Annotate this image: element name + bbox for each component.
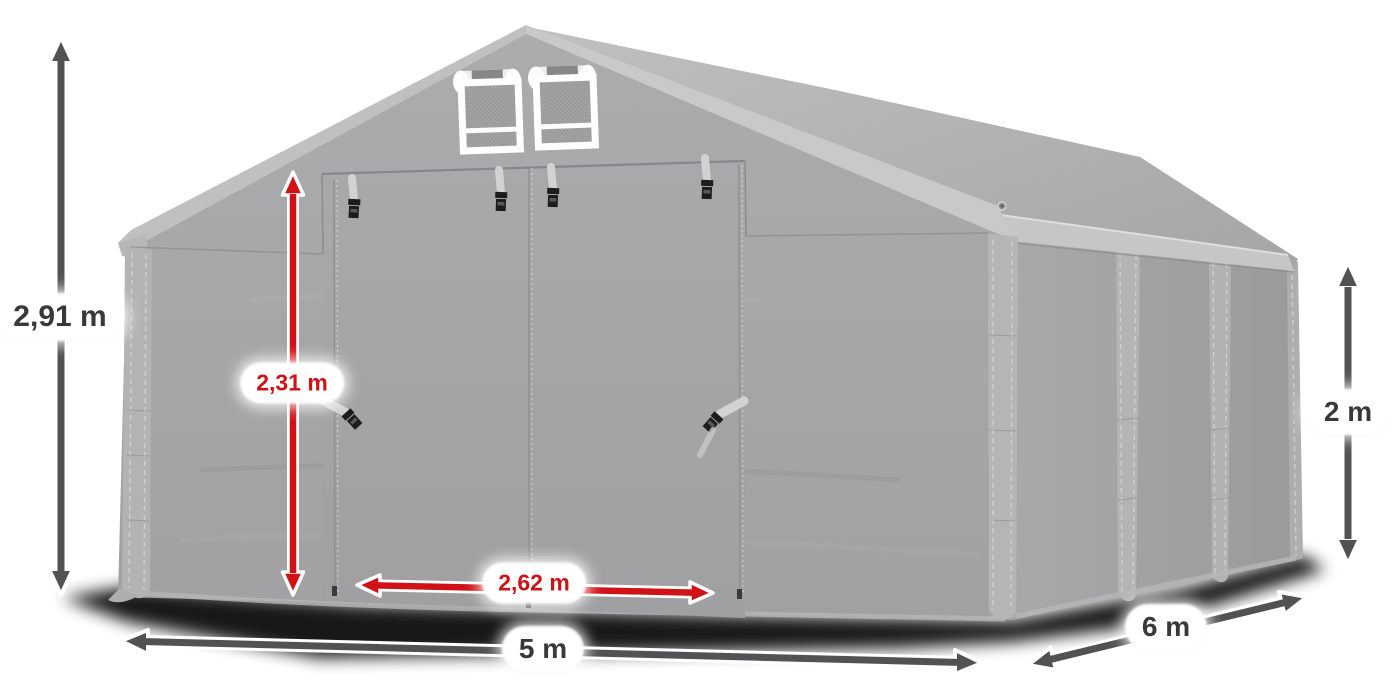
tent-illustration-canvas — [0, 0, 1400, 700]
dimension-label-side-depth: 6 m — [1128, 607, 1204, 647]
dimension-label-front-width: 5 m — [505, 629, 581, 669]
vent-window-left — [453, 68, 524, 151]
dimension-label-door-width: 2,62 m — [485, 566, 583, 601]
dimension-label-total-height: 2,91 m — [0, 296, 122, 338]
tent-side-wall — [1010, 237, 1303, 620]
dimension-label-door-height: 2,31 m — [243, 366, 341, 401]
dimension-label-wall-height: 2 m — [1310, 392, 1386, 432]
tent-front-doors — [322, 161, 746, 618]
side-wall-pillar — [1116, 249, 1140, 601]
front-left-corner-pillar — [108, 247, 152, 602]
vent-window-right — [528, 64, 599, 147]
door-panels — [322, 161, 745, 618]
window-frame — [536, 77, 595, 147]
roof-grommet — [998, 202, 1006, 210]
side-wall-pillar — [1209, 258, 1231, 582]
tent-dimensions-illustration: 2,91 m 2,31 m 2,62 m 5 m 6 m 2 m — [0, 0, 1400, 700]
window-frame — [461, 81, 520, 151]
front-right-corner-pillar — [988, 233, 1018, 619]
